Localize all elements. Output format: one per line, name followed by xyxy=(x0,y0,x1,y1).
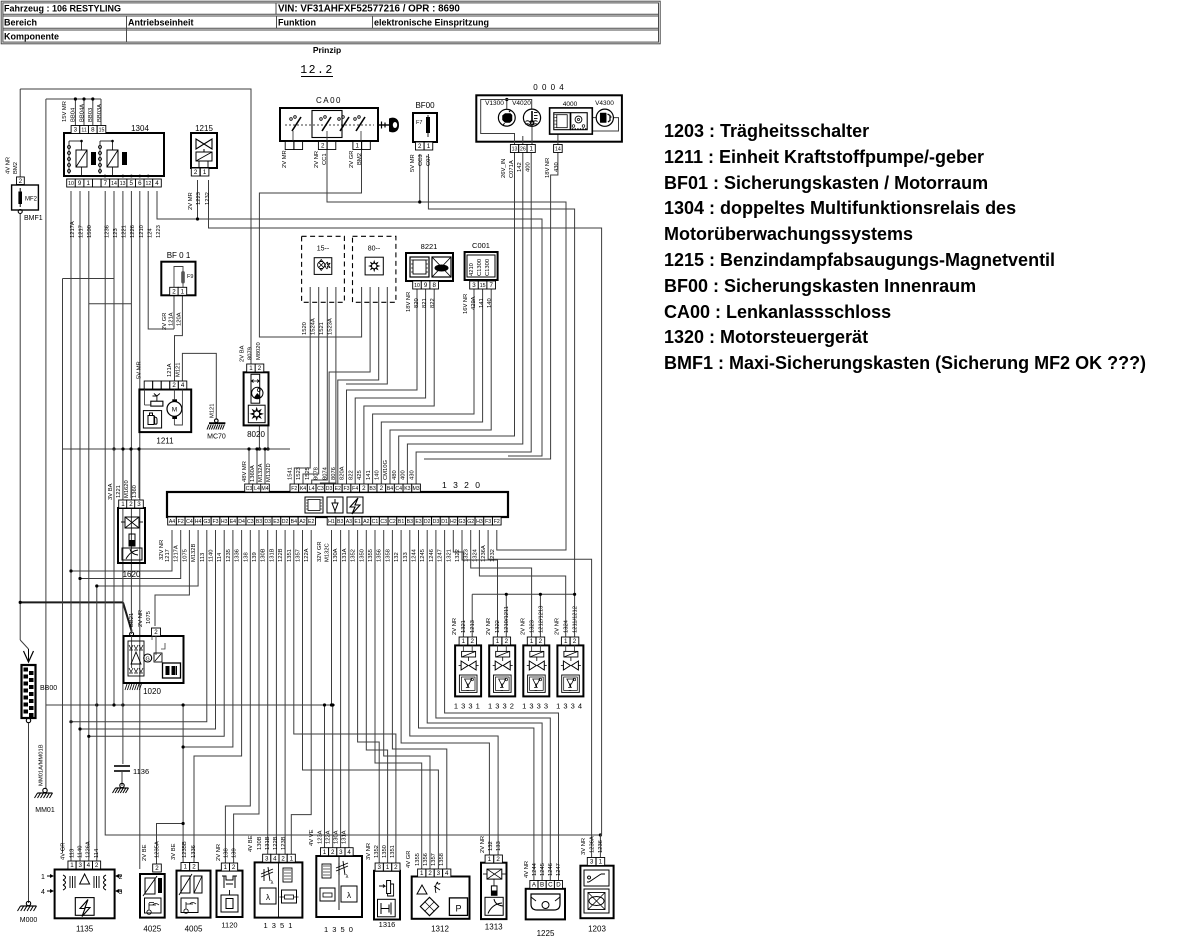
svg-text:1020: 1020 xyxy=(143,687,161,696)
svg-text:D: D xyxy=(556,882,561,889)
svg-text:C001: C001 xyxy=(472,241,490,250)
svg-text:2: 2 xyxy=(573,638,577,645)
svg-text:2V NR: 2V NR xyxy=(452,618,458,635)
svg-text:3V NR: 3V NR xyxy=(366,843,372,860)
svg-text:2: 2 xyxy=(192,864,196,871)
svg-text:1211/1212: 1211/1212 xyxy=(572,606,578,633)
svg-text:1356: 1356 xyxy=(423,853,429,866)
svg-text:140: 140 xyxy=(375,470,381,480)
svg-text:1217A: 1217A xyxy=(70,221,76,238)
svg-text:1: 1 xyxy=(203,169,207,176)
svg-text:1355: 1355 xyxy=(368,549,374,562)
svg-text:1 3 5 0: 1 3 5 0 xyxy=(324,925,354,934)
svg-text:1525: 1525 xyxy=(305,467,311,480)
svg-text:2: 2 xyxy=(428,870,432,877)
svg-text:2V BE: 2V BE xyxy=(142,844,148,861)
svg-text:M000: M000 xyxy=(20,917,38,924)
svg-text:BB21: BB21 xyxy=(129,613,135,627)
svg-text:G2: G2 xyxy=(467,519,474,525)
svg-text:M3: M3 xyxy=(412,486,419,492)
svg-text:15V MR: 15V MR xyxy=(62,101,68,122)
svg-text:1: 1 xyxy=(355,143,359,150)
svg-text:1316: 1316 xyxy=(379,920,396,929)
svg-text:4V BE: 4V BE xyxy=(248,835,254,852)
svg-text:D2: D2 xyxy=(424,519,431,525)
svg-text:3V BE: 3V BE xyxy=(171,843,177,860)
svg-text:12: 12 xyxy=(146,181,152,187)
svg-text:V4300: V4300 xyxy=(595,100,614,107)
svg-text:1: 1 xyxy=(290,855,294,862)
svg-text:1075: 1075 xyxy=(146,611,152,624)
svg-text:λ: λ xyxy=(346,874,349,880)
svg-text:10: 10 xyxy=(68,181,74,187)
svg-text:1223: 1223 xyxy=(196,192,202,205)
svg-text:3: 3 xyxy=(137,501,141,508)
svg-text:2: 2 xyxy=(281,855,285,862)
svg-text:G: G xyxy=(146,657,150,663)
svg-text:F2: F2 xyxy=(291,486,297,492)
svg-text:B: B xyxy=(540,882,544,889)
svg-text:133: 133 xyxy=(403,552,409,562)
svg-text:1352: 1352 xyxy=(374,845,380,858)
svg-text:1350: 1350 xyxy=(382,845,388,858)
svg-text:15: 15 xyxy=(99,128,105,134)
svg-text:4V NR: 4V NR xyxy=(524,861,530,878)
svg-text:2: 2 xyxy=(470,638,474,645)
svg-text:L4: L4 xyxy=(254,486,260,492)
svg-text:D3: D3 xyxy=(326,486,333,492)
svg-text:425: 425 xyxy=(357,470,363,480)
svg-text:1351: 1351 xyxy=(287,549,293,562)
svg-text:2: 2 xyxy=(232,864,236,871)
svg-text:0 0 0 4: 0 0 0 4 xyxy=(533,83,564,92)
svg-text:122B: 122B xyxy=(278,548,284,562)
svg-text:4: 4 xyxy=(273,855,277,862)
svg-text:A4: A4 xyxy=(169,519,175,525)
svg-text:1358: 1358 xyxy=(385,549,391,562)
svg-text:2: 2 xyxy=(380,485,384,492)
svg-text:2V NR: 2V NR xyxy=(486,618,492,635)
svg-text:1351: 1351 xyxy=(390,845,396,858)
svg-text:2: 2 xyxy=(194,169,198,176)
svg-text:3: 3 xyxy=(339,849,343,856)
svg-text:MC70: MC70 xyxy=(207,434,226,441)
svg-text:2V BA: 2V BA xyxy=(240,345,246,362)
svg-text:9: 9 xyxy=(424,282,428,289)
svg-text:139: 139 xyxy=(252,552,258,562)
svg-text:1136: 1136 xyxy=(133,767,149,776)
svg-text:Antriebseinheit: Antriebseinheit xyxy=(128,18,194,28)
svg-text:H3: H3 xyxy=(221,519,228,525)
svg-text:B4: B4 xyxy=(387,486,393,492)
svg-text:E3: E3 xyxy=(415,519,421,525)
svg-text:139: 139 xyxy=(232,848,238,858)
svg-text:1523A: 1523A xyxy=(328,318,334,335)
svg-text:E2: E2 xyxy=(308,519,314,525)
svg-text:1358: 1358 xyxy=(439,853,445,866)
svg-text:822: 822 xyxy=(348,470,354,480)
svg-text:121A: 121A xyxy=(169,312,175,326)
svg-text:3: 3 xyxy=(590,859,594,866)
svg-text:16V NR: 16V NR xyxy=(463,294,469,314)
svg-text:400: 400 xyxy=(526,162,532,172)
svg-text:E4: E4 xyxy=(230,519,236,525)
svg-text:1232: 1232 xyxy=(490,549,496,562)
svg-text:1 3 2 0: 1 3 2 0 xyxy=(442,480,482,490)
svg-text:E1: E1 xyxy=(354,519,360,525)
svg-text:1324: 1324 xyxy=(472,548,478,562)
svg-text:1541: 1541 xyxy=(288,467,294,480)
svg-text:M132C: M132C xyxy=(325,543,331,562)
svg-text:1336: 1336 xyxy=(235,549,241,562)
svg-text:BM2: BM2 xyxy=(13,162,19,174)
svg-text:132: 132 xyxy=(488,841,494,851)
svg-text:1620: 1620 xyxy=(123,570,141,579)
svg-text:D3: D3 xyxy=(433,519,440,525)
svg-text:Prinzip: Prinzip xyxy=(313,45,341,55)
svg-text:2V MR: 2V MR xyxy=(188,192,194,210)
svg-text:1217A: 1217A xyxy=(174,545,180,562)
svg-text:138: 138 xyxy=(243,552,249,562)
svg-text:140: 140 xyxy=(487,298,493,308)
svg-text:122A: 122A xyxy=(304,548,310,562)
svg-text:1: 1 xyxy=(564,638,568,645)
svg-text:1210/1211: 1210/1211 xyxy=(504,606,510,633)
svg-text:BF 0 1: BF 0 1 xyxy=(167,251,191,260)
svg-text:80--: 80-- xyxy=(368,246,381,253)
svg-text:8078: 8078 xyxy=(314,467,320,480)
svg-text:C4: C4 xyxy=(186,519,193,525)
svg-text:131B: 131B xyxy=(269,548,275,562)
svg-text:1120: 1120 xyxy=(221,920,237,929)
svg-text:VIN: VF31AHFXF52577216 / OPR :: VIN: VF31AHFXF52577216 / OPR : 8690 xyxy=(278,4,460,15)
svg-text:A2: A2 xyxy=(299,519,305,525)
svg-text:123: 123 xyxy=(113,228,119,238)
svg-text:5V MR: 5V MR xyxy=(410,154,416,172)
svg-text:M132D: M132D xyxy=(266,463,272,482)
svg-text:C07: C07 xyxy=(426,155,432,166)
svg-text:1: 1 xyxy=(420,870,424,877)
svg-text:2: 2 xyxy=(496,856,500,863)
svg-text:1235: 1235 xyxy=(226,549,232,562)
svg-text:3V BA: 3V BA xyxy=(108,483,114,500)
svg-text:1225: 1225 xyxy=(537,929,555,938)
svg-text:C2: C2 xyxy=(389,519,396,525)
svg-text:1: 1 xyxy=(41,874,45,881)
svg-text:1: 1 xyxy=(488,856,492,863)
svg-text:V4020: V4020 xyxy=(512,100,531,107)
svg-text:138: 138 xyxy=(224,848,230,858)
svg-text:5V MR: 5V MR xyxy=(137,361,143,379)
svg-text:1: 1 xyxy=(121,501,125,508)
svg-text:2V NR: 2V NR xyxy=(554,618,560,635)
svg-text:F9: F9 xyxy=(187,274,193,280)
svg-text:H3: H3 xyxy=(476,519,483,525)
svg-text:142: 142 xyxy=(517,162,523,172)
svg-text:1 3 3 2: 1 3 3 2 xyxy=(488,702,514,711)
svg-text:1360A: 1360A xyxy=(250,465,256,482)
svg-text:13: 13 xyxy=(512,147,518,153)
svg-text:124: 124 xyxy=(147,228,153,238)
svg-text:429A: 429A xyxy=(471,296,477,310)
svg-text:1236: 1236 xyxy=(598,840,604,853)
svg-text:λ: λ xyxy=(271,880,274,886)
svg-text:G3: G3 xyxy=(203,519,210,525)
svg-text:BF00: BF00 xyxy=(415,101,435,110)
svg-text:1246: 1246 xyxy=(548,863,554,876)
svg-text:4000: 4000 xyxy=(563,101,578,108)
svg-text:CM10G: CM10G xyxy=(383,460,389,480)
svg-text:8079: 8079 xyxy=(248,347,254,360)
svg-text:1: 1 xyxy=(462,638,466,645)
svg-text:2: 2 xyxy=(331,849,335,856)
svg-text:F3: F3 xyxy=(485,519,491,525)
svg-text:130B: 130B xyxy=(261,548,267,562)
svg-text:4V NR: 4V NR xyxy=(6,157,12,174)
svg-text:130A: 130A xyxy=(333,548,339,562)
svg-text:1: 1 xyxy=(599,859,603,866)
svg-text:1521: 1521 xyxy=(319,322,325,335)
svg-text:Fahrzeug : 106 RESTYLING: Fahrzeug : 106 RESTYLING xyxy=(4,4,121,14)
svg-text:Funktion: Funktion xyxy=(278,18,316,28)
svg-text:1247: 1247 xyxy=(556,863,562,876)
svg-text:BMF1: BMF1 xyxy=(24,215,43,222)
svg-text:3: 3 xyxy=(119,889,123,896)
svg-text:C3: C3 xyxy=(246,486,253,492)
svg-text:2V GR: 2V GR xyxy=(162,313,168,330)
svg-text:1: 1 xyxy=(181,289,185,296)
svg-text:A2: A2 xyxy=(363,519,369,525)
svg-text:3V NR: 3V NR xyxy=(581,838,587,855)
svg-text:1236A: 1236A xyxy=(481,545,487,562)
svg-text:B3: B3 xyxy=(256,519,262,525)
svg-text:BM2: BM2 xyxy=(357,153,363,165)
svg-text:8221: 8221 xyxy=(421,242,438,251)
svg-text:2: 2 xyxy=(155,865,159,872)
svg-text:430: 430 xyxy=(554,162,560,172)
svg-text:1244: 1244 xyxy=(412,548,418,562)
svg-text:113: 113 xyxy=(200,553,206,562)
svg-text:8074: 8074 xyxy=(322,466,328,480)
svg-text:G3: G3 xyxy=(459,519,466,525)
svg-text:1232: 1232 xyxy=(205,192,211,205)
svg-text:12.2: 12.2 xyxy=(300,64,334,77)
svg-text:141: 141 xyxy=(479,298,485,308)
svg-text:26: 26 xyxy=(520,147,526,153)
svg-text:13: 13 xyxy=(120,181,126,187)
svg-text:114: 114 xyxy=(94,848,100,858)
svg-text:F2: F2 xyxy=(494,519,500,525)
svg-text:1: 1 xyxy=(70,862,74,869)
svg-text:C3: C3 xyxy=(317,486,324,492)
svg-text:26V_IN: 26V_IN xyxy=(501,159,507,178)
svg-text:1245: 1245 xyxy=(540,863,546,876)
svg-text:18V NR: 18V NR xyxy=(545,158,551,178)
svg-text:6: 6 xyxy=(138,180,142,187)
svg-text:F7: F7 xyxy=(416,120,422,126)
svg-text:BB04: BB04 xyxy=(71,107,77,122)
svg-text:1236A: 1236A xyxy=(590,836,596,853)
svg-text:1352: 1352 xyxy=(351,549,357,562)
svg-text:L4: L4 xyxy=(309,486,315,492)
svg-text:430: 430 xyxy=(409,470,415,480)
svg-text:1: 1 xyxy=(530,638,534,645)
svg-text:4210: 4210 xyxy=(469,263,475,276)
svg-text:2V NR: 2V NR xyxy=(216,844,222,861)
svg-text:K3: K3 xyxy=(404,486,410,492)
svg-text:elektronische Einspritzung: elektronische Einspritzung xyxy=(374,18,489,28)
svg-text:1221: 1221 xyxy=(116,485,122,498)
svg-text:1360: 1360 xyxy=(132,485,138,498)
svg-text:Komponente: Komponente xyxy=(4,32,59,42)
svg-text:BB04A: BB04A xyxy=(79,104,85,122)
svg-text:M: M xyxy=(172,407,177,414)
svg-text:1590: 1590 xyxy=(87,225,93,238)
svg-text:1217: 1217 xyxy=(165,549,171,562)
svg-text:123B: 123B xyxy=(281,836,287,850)
svg-text:MM01: MM01 xyxy=(35,807,55,814)
svg-text:2: 2 xyxy=(129,501,133,508)
svg-text:λ: λ xyxy=(266,893,270,902)
svg-text:3: 3 xyxy=(377,864,381,871)
svg-text:822: 822 xyxy=(430,298,436,308)
svg-text:480: 480 xyxy=(392,470,398,480)
svg-text:B1: B1 xyxy=(398,519,404,525)
svg-text:F3: F3 xyxy=(343,486,349,492)
svg-text:C: C xyxy=(548,882,553,889)
svg-text:7: 7 xyxy=(104,180,108,187)
svg-text:14: 14 xyxy=(555,147,561,153)
svg-text:1523: 1523 xyxy=(296,467,302,480)
svg-text:MF2: MF2 xyxy=(25,197,38,203)
svg-text:1350: 1350 xyxy=(359,549,365,562)
svg-text:3: 3 xyxy=(78,862,82,869)
svg-text:4025: 4025 xyxy=(143,925,161,934)
svg-text:122B: 122B xyxy=(273,836,279,850)
svg-text:1140: 1140 xyxy=(209,550,215,562)
svg-text:5: 5 xyxy=(129,180,133,187)
svg-text:2: 2 xyxy=(418,143,422,150)
svg-text:113: 113 xyxy=(70,849,76,858)
svg-text:1: 1 xyxy=(529,146,533,153)
svg-text:1520: 1520 xyxy=(302,322,308,335)
svg-text:15--: 15-- xyxy=(317,246,330,253)
svg-text:1 3 3 1: 1 3 3 1 xyxy=(454,702,480,711)
svg-text:E3: E3 xyxy=(273,519,279,525)
svg-text:2V MR: 2V MR xyxy=(282,150,288,168)
svg-text:10: 10 xyxy=(414,283,420,289)
svg-text:2V NR: 2V NR xyxy=(138,610,144,627)
svg-text:8: 8 xyxy=(432,282,436,289)
svg-text:1213: 1213 xyxy=(470,620,476,633)
svg-text:2: 2 xyxy=(394,864,398,871)
svg-text:130A: 130A xyxy=(334,830,340,844)
svg-text:B3: B3 xyxy=(407,519,413,525)
svg-text:1221: 1221 xyxy=(122,225,128,238)
svg-text:Bereich: Bereich xyxy=(4,18,37,28)
svg-text:1210: 1210 xyxy=(139,225,145,238)
svg-text:1312: 1312 xyxy=(431,925,449,934)
svg-text:1236: 1236 xyxy=(104,225,110,238)
svg-text:1211: 1211 xyxy=(156,437,174,446)
svg-text:BB03A: BB03A xyxy=(97,104,103,122)
svg-text:C1: C1 xyxy=(372,519,379,525)
svg-text:B3: B3 xyxy=(337,519,343,525)
svg-text:1235A: 1235A xyxy=(155,841,161,858)
svg-text:1524A: 1524A xyxy=(311,318,317,335)
svg-text:C3: C3 xyxy=(380,519,387,525)
svg-text:2: 2 xyxy=(505,638,509,645)
svg-text:1355: 1355 xyxy=(415,853,421,866)
svg-text:2V GR: 2V GR xyxy=(349,151,355,168)
svg-text:1: 1 xyxy=(323,849,327,856)
svg-text:2: 2 xyxy=(258,365,262,372)
svg-text:2: 2 xyxy=(119,874,123,881)
svg-text:H1: H1 xyxy=(328,519,335,525)
svg-text:131A: 131A xyxy=(342,548,348,562)
svg-text:821: 821 xyxy=(422,298,428,308)
svg-text:8076: 8076 xyxy=(331,467,337,480)
svg-text:2: 2 xyxy=(362,485,366,492)
svg-text:15: 15 xyxy=(480,283,486,289)
svg-text:1 3 3 4: 1 3 3 4 xyxy=(556,702,582,711)
svg-text:C4: C4 xyxy=(395,486,402,492)
svg-text:4: 4 xyxy=(445,870,449,877)
svg-text:2: 2 xyxy=(539,638,543,645)
svg-text:D3: D3 xyxy=(264,519,271,525)
svg-text:114: 114 xyxy=(217,552,223,562)
svg-text:1140: 1140 xyxy=(78,846,84,858)
svg-text:D2: D2 xyxy=(282,519,289,525)
svg-text:D1: D1 xyxy=(441,519,448,525)
svg-text:1357: 1357 xyxy=(296,549,302,562)
svg-text:P: P xyxy=(455,904,461,914)
svg-text:4: 4 xyxy=(87,862,91,869)
svg-text:CA00: CA00 xyxy=(316,96,342,105)
svg-text:C3: C3 xyxy=(247,519,254,525)
svg-text:1357: 1357 xyxy=(431,853,437,866)
svg-text:C071A: C071A xyxy=(509,160,515,178)
svg-text:4005: 4005 xyxy=(185,925,203,934)
svg-text:1: 1 xyxy=(249,365,253,372)
svg-text:8: 8 xyxy=(91,127,95,134)
svg-text:820: 820 xyxy=(414,298,420,308)
svg-text:H4: H4 xyxy=(195,519,202,525)
svg-text:141: 141 xyxy=(366,470,372,480)
svg-text:2: 2 xyxy=(19,178,23,185)
svg-text:3: 3 xyxy=(437,870,441,877)
svg-text:B4: B4 xyxy=(291,519,297,525)
svg-text:V1300: V1300 xyxy=(485,100,504,107)
svg-text:1: 1 xyxy=(496,638,500,645)
svg-text:123A: 123A xyxy=(318,830,324,844)
svg-text:1336: 1336 xyxy=(191,845,197,858)
svg-text:132: 132 xyxy=(394,552,400,562)
svg-text:1226A: 1226A xyxy=(86,841,92,858)
svg-text:1: 1 xyxy=(427,143,431,150)
svg-text:M121: M121 xyxy=(175,362,181,377)
svg-text:1321: 1321 xyxy=(446,549,452,562)
svg-text:1: 1 xyxy=(184,864,188,871)
svg-text:8020: 8020 xyxy=(247,430,265,439)
svg-text:131B: 131B xyxy=(265,836,271,850)
svg-text:4V GR: 4V GR xyxy=(61,843,67,860)
svg-text:3: 3 xyxy=(472,282,476,289)
svg-text:1: 1 xyxy=(224,864,228,871)
svg-text:3: 3 xyxy=(265,855,269,862)
svg-text:MM01A/MM01B: MM01A/MM01B xyxy=(39,744,45,786)
svg-text:M8020: M8020 xyxy=(256,342,262,360)
